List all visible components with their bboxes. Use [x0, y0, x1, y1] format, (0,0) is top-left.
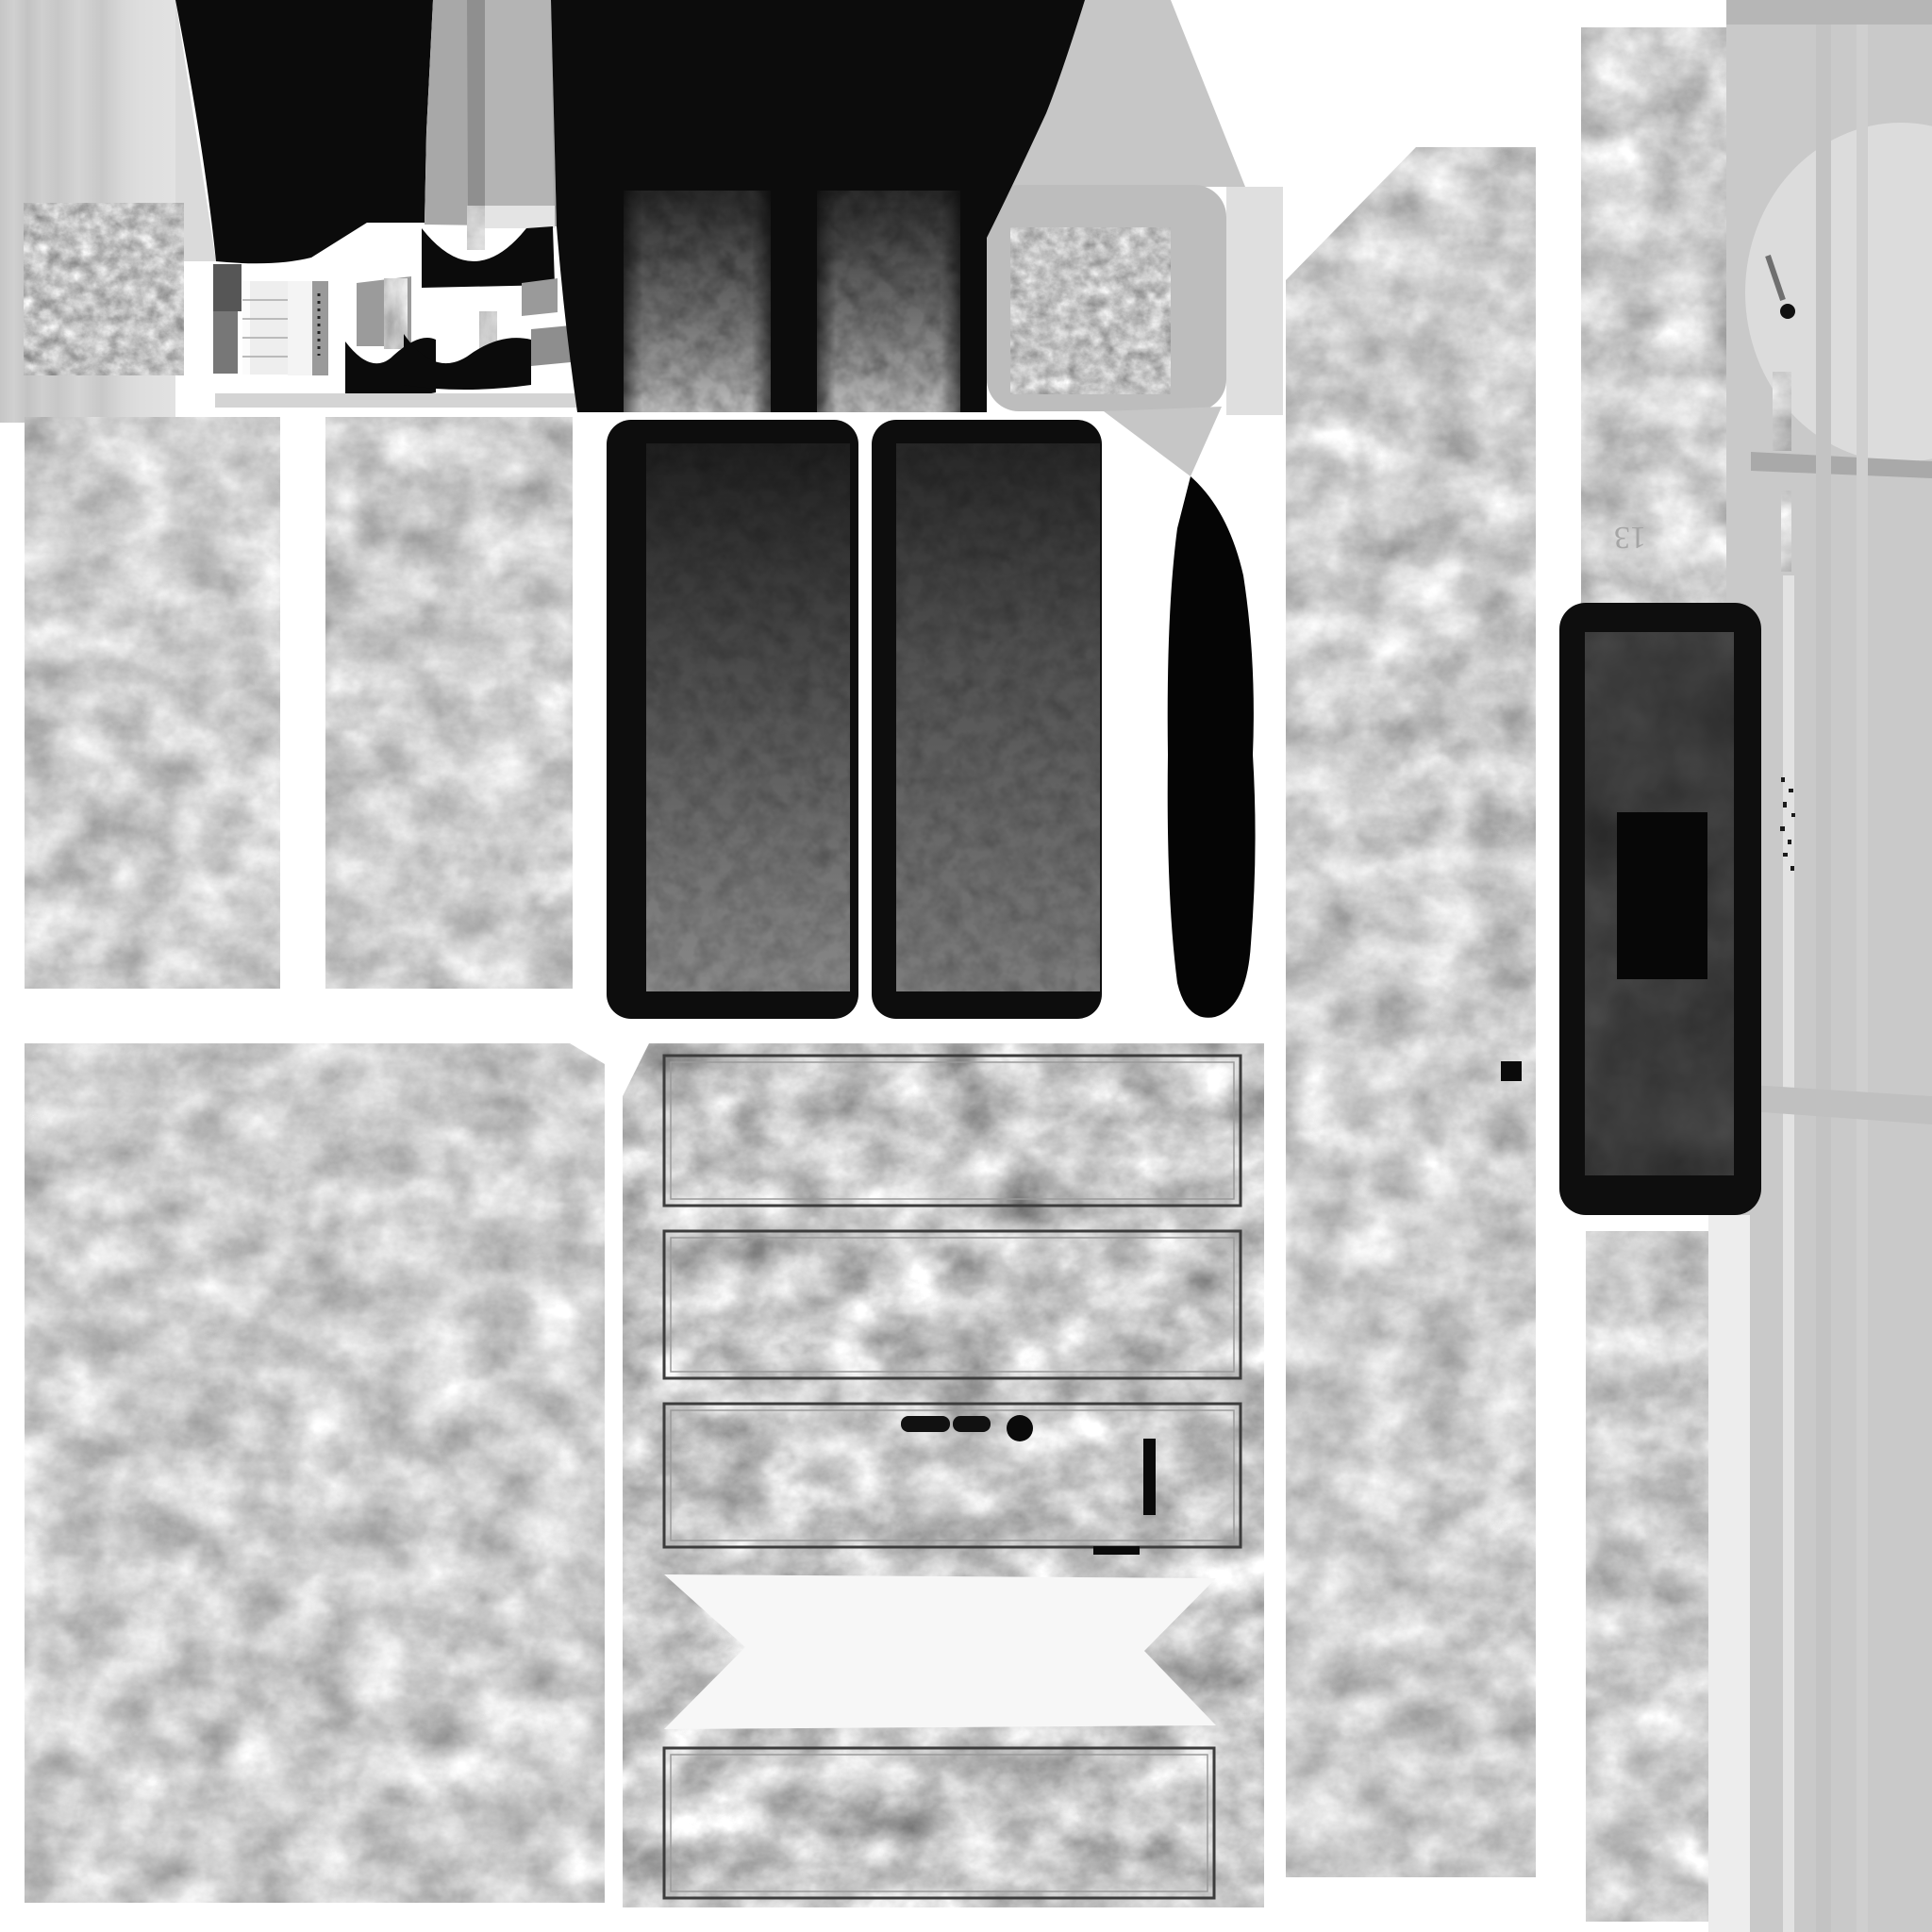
- svg-text:13: 13: [1614, 520, 1646, 555]
